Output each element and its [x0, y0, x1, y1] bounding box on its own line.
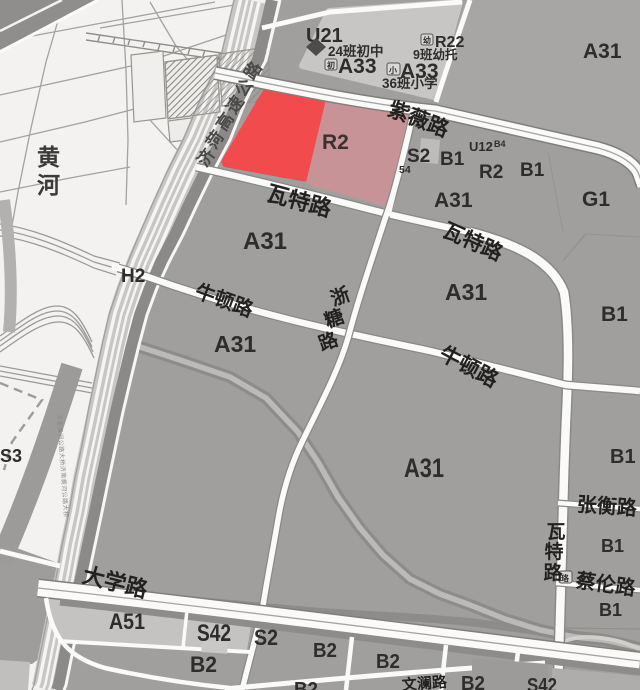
- svg-text:A31: A31: [445, 279, 487, 305]
- svg-text:A31: A31: [434, 189, 473, 212]
- svg-text:S42: S42: [527, 675, 557, 690]
- svg-text:S42: S42: [197, 620, 231, 647]
- svg-text:U12: U12: [469, 139, 493, 154]
- svg-text:B1: B1: [601, 536, 624, 556]
- svg-text:A33: A33: [338, 55, 377, 78]
- svg-text:G1: G1: [582, 188, 610, 211]
- svg-text:瓦: 瓦: [546, 522, 565, 543]
- svg-text:路: 路: [543, 561, 563, 584]
- svg-text:A51: A51: [109, 609, 145, 634]
- svg-text:A31: A31: [214, 331, 256, 357]
- svg-text:A31: A31: [404, 453, 444, 483]
- svg-text:B2: B2: [313, 640, 337, 662]
- svg-text:A31: A31: [583, 40, 622, 63]
- svg-text:B2: B2: [461, 673, 485, 690]
- svg-text:S2: S2: [254, 625, 278, 650]
- svg-text:河: 河: [37, 172, 60, 198]
- svg-text:54: 54: [399, 164, 411, 176]
- svg-text:R2: R2: [479, 162, 503, 183]
- svg-text:特: 特: [544, 541, 563, 563]
- svg-text:9班幼托: 9班幼托: [413, 47, 458, 62]
- svg-text:B4: B4: [494, 139, 506, 149]
- svg-text:S3: S3: [0, 446, 22, 466]
- svg-text:B1: B1: [610, 446, 636, 468]
- svg-text:B2: B2: [376, 651, 400, 673]
- svg-text:B2: B2: [294, 679, 318, 690]
- svg-text:幼: 幼: [423, 35, 431, 45]
- svg-text:H2: H2: [121, 266, 145, 287]
- svg-text:B1: B1: [520, 160, 545, 181]
- svg-text:小: 小: [388, 65, 397, 75]
- svg-text:A31: A31: [243, 228, 287, 255]
- svg-text:B1: B1: [440, 149, 465, 170]
- svg-text:黄: 黄: [37, 144, 60, 170]
- svg-text:R2: R2: [322, 131, 349, 154]
- svg-text:初: 初: [327, 60, 335, 70]
- svg-text:B2: B2: [190, 652, 217, 677]
- svg-text:B1: B1: [599, 600, 622, 620]
- svg-text:B1: B1: [601, 303, 628, 326]
- svg-text:36班小学: 36班小学: [382, 75, 438, 91]
